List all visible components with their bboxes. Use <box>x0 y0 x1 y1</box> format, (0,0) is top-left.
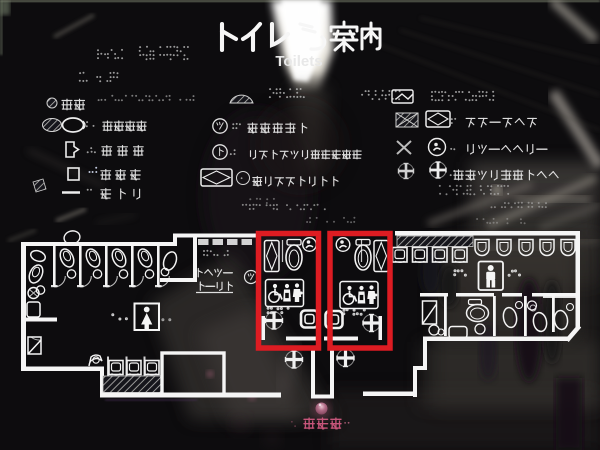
svg-text:Toilets: Toilets <box>275 53 322 70</box>
